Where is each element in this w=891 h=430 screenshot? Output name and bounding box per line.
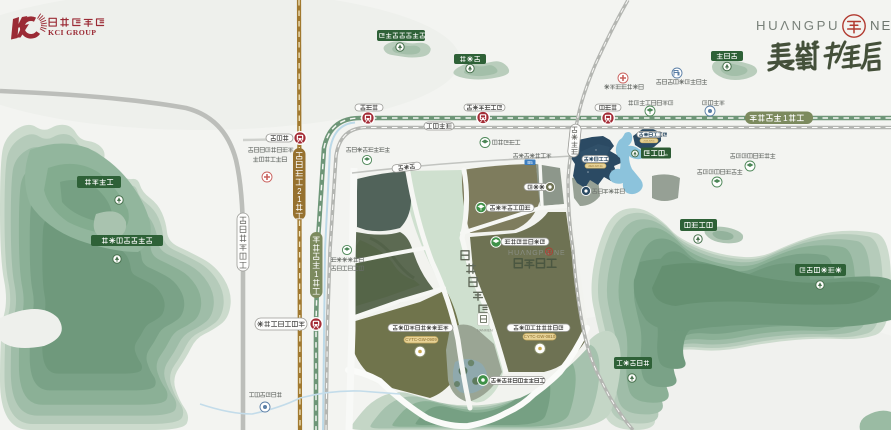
svg-text:2023-NJY-6: 2023-NJY-6 [644, 141, 656, 143]
svg-text:NE: NE [870, 18, 891, 33]
svg-text:HUΛNGPU: HUΛNGPU [756, 18, 840, 33]
svg-text:CYTC-GW-0909: CYTC-GW-0909 [405, 337, 437, 342]
svg-text:NE: NE [554, 250, 566, 257]
svg-text:1: 1 [297, 195, 302, 204]
svg-text:1: 1 [314, 270, 319, 279]
svg-text:HUΛNGPU: HUΛNGPU [508, 250, 551, 257]
svg-text:ab: ab [664, 153, 668, 157]
svg-text:CYTC-GW-0810: CYTC-GW-0810 [524, 334, 556, 339]
svg-text:KCI GROUP: KCI GROUP [48, 28, 96, 37]
svg-text:1: 1 [783, 113, 788, 123]
svg-text:NANMEN: NANMEN [477, 329, 493, 333]
svg-text:B5: B5 [527, 160, 533, 165]
svg-text:2022-NJY-11: 2022-NJY-11 [588, 165, 603, 168]
